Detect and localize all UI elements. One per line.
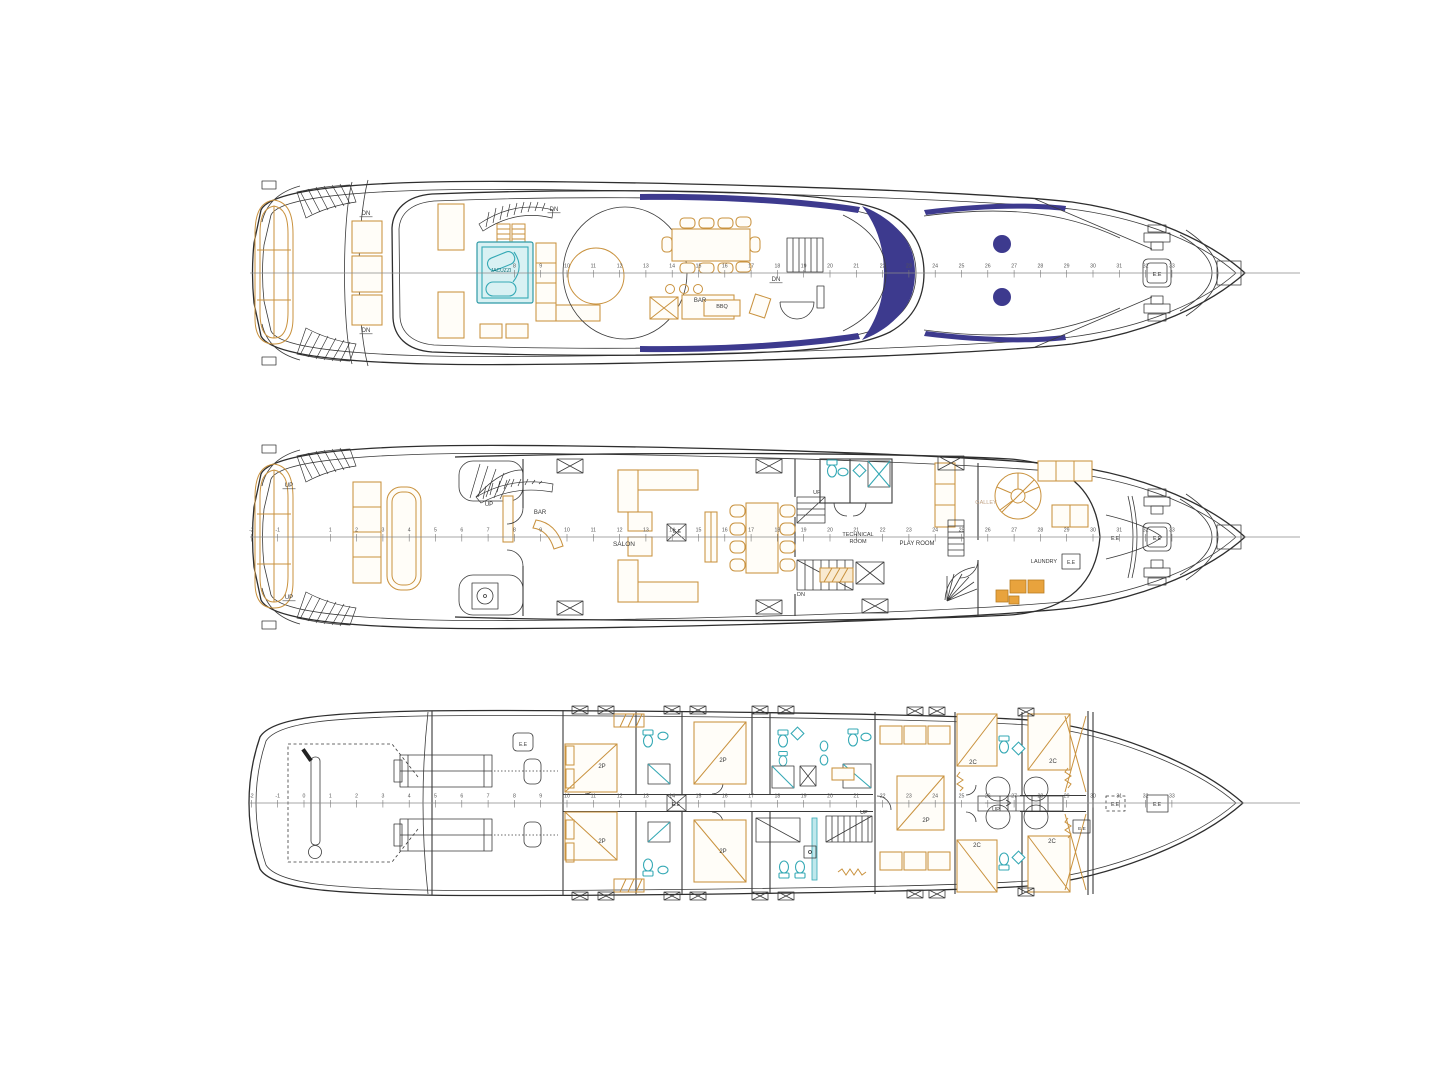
label-2p: 2P	[719, 849, 726, 855]
deck-hatch-port	[993, 235, 1011, 253]
station-main-deck-5: 5	[434, 528, 437, 534]
deck-plans-canvas: 8910111213141516171819202122232425262728…	[0, 0, 1440, 1080]
station-sun-deck-33: 33	[1169, 264, 1175, 270]
label-2p: 2P	[598, 839, 605, 845]
yacht-deck-plan-page: 8910111213141516171819202122232425262728…	[0, 0, 1440, 1080]
station-lower-deck-7: 7	[487, 794, 490, 800]
station-sun-deck-17: 17	[748, 264, 754, 270]
station-lower-deck-16: 16	[722, 794, 728, 800]
master-cabin	[880, 726, 950, 870]
station-lower-deck-33: 33	[1169, 794, 1175, 800]
station-main-deck-13: 13	[643, 528, 649, 534]
label-2c: 2C	[973, 843, 981, 849]
station-sun-deck-9: 9	[539, 264, 542, 270]
day-head-bathroom	[820, 459, 892, 516]
station-sun-deck-29: 29	[1064, 264, 1070, 270]
station-main-deck-6: 6	[460, 528, 463, 534]
label-up: UP	[285, 595, 293, 601]
station-lower-deck-15: 15	[696, 794, 702, 800]
station-sun-deck-14: 14	[669, 264, 675, 270]
label-e-e: E.E	[1078, 826, 1086, 832]
station-main-deck-2: 2	[355, 528, 358, 534]
station-main-deck-10: 10	[564, 528, 570, 534]
station-lower-deck-19: 19	[801, 794, 807, 800]
label-2p: 2P	[719, 758, 726, 764]
ladder-steps	[497, 224, 525, 244]
station-sun-deck-30: 30	[1090, 264, 1096, 270]
label-bbq: BBQ	[716, 304, 728, 310]
station-sun-deck-8: 8	[513, 264, 516, 270]
station-lower-deck-30: 30	[1090, 794, 1096, 800]
salon-furniture	[618, 470, 717, 602]
dining-table	[730, 503, 795, 573]
stairs-down-mid	[780, 238, 824, 319]
label-2c: 2C	[1048, 839, 1056, 845]
galley	[995, 461, 1092, 527]
station-main-deck-30: 30	[1090, 528, 1096, 534]
station-sun-deck-28: 28	[1038, 264, 1044, 270]
station-sun-deck-26: 26	[985, 264, 991, 270]
station-lower-deck-4: 4	[408, 794, 411, 800]
station-main-deck--2: -2	[249, 528, 254, 534]
station-lower-deck-31: 31	[1116, 794, 1122, 800]
lower-deck-plan: -2-1012345678910111213141516171819202122…	[249, 706, 1300, 900]
station-main-deck-27: 27	[1011, 528, 1017, 534]
station-sun-deck-23: 23	[906, 264, 912, 270]
station-lower-deck-28: 28	[1038, 794, 1044, 800]
label-laundry: LAUNDRY	[1031, 559, 1058, 565]
sun-deck-plan: 8910111213141516171819202122232425262728…	[250, 180, 1300, 366]
station-lower-deck-18: 18	[775, 794, 781, 800]
station-main-deck-9: 9	[539, 528, 542, 534]
stern-stairs-port	[297, 448, 356, 482]
lower-deck-ruler: -2-1012345678910111213141516171819202122…	[249, 794, 1300, 808]
station-main-deck--1: -1	[275, 528, 280, 534]
label-e-e: E.E	[1153, 272, 1162, 278]
label-salon: SALON	[613, 541, 635, 548]
station-main-deck-26: 26	[985, 528, 991, 534]
station-main-deck-15: 15	[696, 528, 702, 534]
label-dn: DN	[550, 207, 559, 213]
label-2p: 2P	[922, 818, 929, 824]
station-main-deck-17: 17	[748, 528, 754, 534]
station-main-deck-18: 18	[775, 528, 781, 534]
station-sun-deck-20: 20	[827, 264, 833, 270]
stairs-down-mid	[797, 560, 853, 590]
stern-cleat	[262, 181, 276, 189]
sundeck-sofa	[536, 243, 600, 321]
station-main-deck-29: 29	[1064, 528, 1070, 534]
label-bar: BAR	[694, 298, 707, 304]
station-lower-deck-29: 29	[1064, 794, 1070, 800]
station-lower-deck-14: 14	[669, 794, 675, 800]
aft-deck-seating	[353, 482, 421, 590]
label-galley: GALLEY	[975, 500, 997, 506]
label-bar: BAR	[534, 510, 547, 516]
sundeck-dining	[662, 217, 760, 273]
station-sun-deck-32: 32	[1143, 264, 1149, 270]
play-room	[935, 463, 978, 616]
station-lower-deck-3: 3	[381, 794, 384, 800]
label-up: UP	[992, 807, 1000, 813]
station-main-deck-7: 7	[487, 528, 490, 534]
station-main-deck-3: 3	[381, 528, 384, 534]
station-sun-deck-25: 25	[959, 264, 965, 270]
round-sunbed	[568, 248, 624, 304]
station-lower-deck-23: 23	[906, 794, 912, 800]
station-main-deck-23: 23	[906, 528, 912, 534]
label-2c: 2C	[1049, 759, 1057, 765]
station-main-deck-20: 20	[827, 528, 833, 534]
cockpit-awning	[476, 479, 553, 503]
label-e-e: E.E	[1153, 802, 1162, 808]
station-lower-deck-5: 5	[434, 794, 437, 800]
main-deck-plan: -2-1123456789101112131415161718192021222…	[249, 445, 1300, 629]
pillar-cabinet	[503, 496, 513, 542]
station-main-deck-22: 22	[880, 528, 886, 534]
station-lower-deck-25: 25	[959, 794, 965, 800]
station-sun-deck-24: 24	[932, 264, 938, 270]
label-up: UP	[813, 490, 821, 496]
station-lower-deck-8: 8	[513, 794, 516, 800]
station-lower-deck-27: 27	[1011, 794, 1017, 800]
station-main-deck-8: 8	[513, 528, 516, 534]
station-main-deck-12: 12	[617, 528, 623, 534]
station-main-deck-31: 31	[1116, 528, 1122, 534]
awning-grating	[479, 202, 553, 231]
label-dn: DN	[797, 592, 805, 598]
label-up: UP	[285, 483, 293, 489]
label-up: UP	[485, 502, 493, 508]
station-sun-deck-11: 11	[591, 264, 596, 270]
station-main-deck-4: 4	[408, 528, 411, 534]
label-e-e: E.E	[1111, 802, 1120, 808]
label-technical: TECHNICAL	[842, 532, 873, 538]
station-lower-deck--2: -2	[249, 794, 254, 800]
stern-cleat	[262, 357, 276, 365]
station-main-deck-28: 28	[1038, 528, 1044, 534]
station-lower-deck-17: 17	[748, 794, 754, 800]
station-sun-deck-10: 10	[564, 264, 570, 270]
label-e-e: E.E	[519, 742, 528, 748]
label-play-room: PLAY ROOM	[899, 541, 934, 547]
label-e-e: E.E	[672, 802, 681, 808]
station-sun-deck-19: 19	[801, 264, 807, 270]
bar-counter	[650, 285, 771, 320]
station-main-deck-25: 25	[959, 528, 965, 534]
station-lower-deck-12: 12	[617, 794, 623, 800]
bar-curved-counter	[533, 520, 563, 549]
label-up: UP	[860, 810, 868, 816]
station-lower-deck-24: 24	[932, 794, 938, 800]
label-dn: DN	[362, 211, 371, 217]
station-lower-deck-26: 26	[985, 794, 991, 800]
station-lower-deck-32: 32	[1143, 794, 1149, 800]
station-main-deck-33: 33	[1169, 528, 1175, 534]
label-e-e: E.E	[673, 529, 682, 535]
rudder-stock	[301, 748, 312, 762]
label-2p: 2P	[598, 764, 605, 770]
stairs-up-mid	[797, 497, 825, 523]
station-sun-deck-12: 12	[617, 264, 623, 270]
sun-deck-ruler: 8910111213141516171819202122232425262728…	[250, 264, 1300, 278]
station-main-deck-19: 19	[801, 528, 807, 534]
station-lower-deck-21: 21	[853, 794, 859, 800]
label-e-e: E.E	[1067, 560, 1076, 566]
station-lower-deck-13: 13	[643, 794, 649, 800]
station-sun-deck-27: 27	[1011, 264, 1017, 270]
station-lower-deck-2: 2	[355, 794, 358, 800]
station-lower-deck-6: 6	[460, 794, 463, 800]
label-dn: DN	[772, 277, 781, 283]
engine-room	[394, 733, 558, 851]
station-main-deck-16: 16	[722, 528, 728, 534]
label-2c: 2C	[969, 760, 977, 766]
station-main-deck-32: 32	[1143, 528, 1149, 534]
station-lower-deck-9: 9	[539, 794, 542, 800]
station-main-deck-1: 1	[329, 528, 332, 534]
station-sun-deck-15: 15	[696, 264, 702, 270]
station-lower-deck-20: 20	[827, 794, 833, 800]
station-sun-deck-22: 22	[880, 264, 886, 270]
guest-cabin-beds	[565, 722, 746, 882]
station-lower-deck-10: 10	[564, 794, 570, 800]
label-dn: DN	[362, 328, 371, 334]
station-sun-deck-21: 21	[853, 264, 859, 270]
station-main-deck-11: 11	[591, 528, 596, 534]
station-sun-deck-31: 31	[1116, 264, 1122, 270]
label-e-e: E.E	[1111, 536, 1120, 542]
station-main-deck-24: 24	[932, 528, 938, 534]
station-sun-deck-18: 18	[775, 264, 781, 270]
station-lower-deck-1: 1	[329, 794, 332, 800]
station-sun-deck-13: 13	[643, 264, 649, 270]
station-lower-deck-11: 11	[591, 794, 596, 800]
stern-stairs-starboard	[297, 592, 356, 626]
tender-boat	[255, 200, 293, 344]
label-jacuzzi: JACUZZI	[491, 268, 512, 274]
station-lower-deck-0: 0	[303, 794, 306, 800]
label-e-e: E.E	[1153, 536, 1162, 542]
station-sun-deck-16: 16	[722, 264, 728, 270]
deck-hatch-starboard	[993, 288, 1011, 306]
station-lower-deck-22: 22	[880, 794, 886, 800]
label-room: ROOM	[849, 539, 867, 545]
technical-room-crate	[856, 562, 884, 584]
station-lower-deck--1: -1	[275, 794, 280, 800]
